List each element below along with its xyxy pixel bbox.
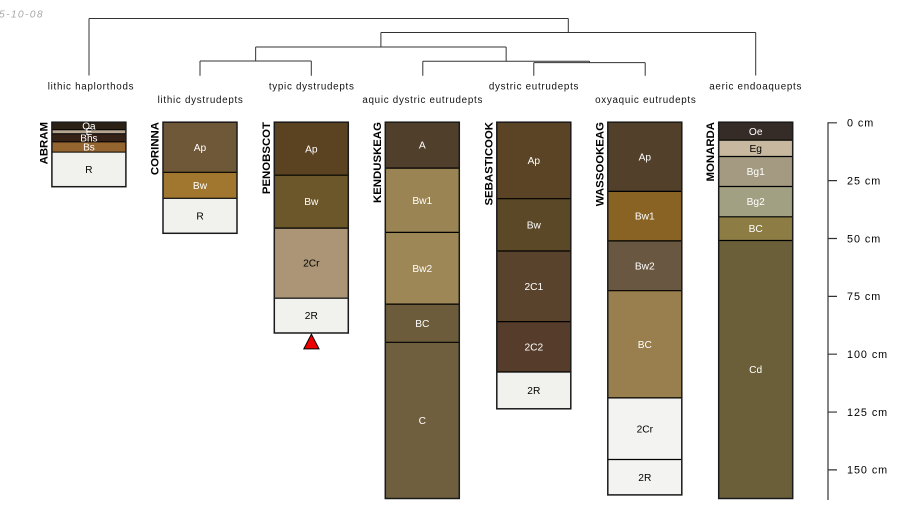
svg-text:A: A bbox=[419, 141, 426, 152]
svg-text:KENDUSKEAG: KENDUSKEAG bbox=[372, 122, 384, 203]
svg-text:2Cr: 2Cr bbox=[637, 424, 654, 435]
svg-text:50 cm: 50 cm bbox=[847, 233, 881, 245]
svg-text:Bw2: Bw2 bbox=[412, 264, 432, 275]
svg-text:150 cm: 150 cm bbox=[847, 465, 888, 477]
svg-text:aeric endoaquepts: aeric endoaquepts bbox=[709, 81, 802, 92]
svg-text:dystric eutrudepts: dystric eutrudepts bbox=[489, 81, 579, 92]
svg-text:Bg2: Bg2 bbox=[747, 197, 765, 208]
svg-text:25 cm: 25 cm bbox=[847, 175, 881, 187]
svg-text:Eg: Eg bbox=[749, 144, 762, 155]
svg-text:0 cm: 0 cm bbox=[847, 118, 874, 130]
svg-text:R: R bbox=[196, 211, 203, 222]
svg-text:75 cm: 75 cm bbox=[847, 291, 881, 303]
svg-text:typic dystrudepts: typic dystrudepts bbox=[269, 81, 355, 92]
svg-text:2R: 2R bbox=[527, 386, 540, 397]
svg-text:ABRAM: ABRAM bbox=[38, 122, 50, 164]
svg-text:Bs: Bs bbox=[83, 143, 95, 154]
svg-text:5-10-08: 5-10-08 bbox=[0, 10, 44, 21]
svg-text:R: R bbox=[85, 165, 92, 176]
svg-text:2C2: 2C2 bbox=[524, 342, 543, 353]
svg-text:Bw1: Bw1 bbox=[412, 196, 432, 207]
svg-text:Bw2: Bw2 bbox=[635, 261, 655, 272]
svg-text:Ap: Ap bbox=[194, 143, 207, 154]
svg-text:WASSOOKEAG: WASSOOKEAG bbox=[594, 122, 606, 206]
svg-text:2R: 2R bbox=[638, 473, 651, 484]
svg-text:2C1: 2C1 bbox=[524, 282, 543, 293]
svg-text:Ap: Ap bbox=[305, 144, 318, 155]
svg-text:125 cm: 125 cm bbox=[847, 407, 888, 419]
svg-text:BC: BC bbox=[749, 224, 763, 235]
svg-text:lithic dystrudepts: lithic dystrudepts bbox=[158, 95, 244, 106]
svg-text:2Cr: 2Cr bbox=[303, 259, 320, 270]
svg-text:C: C bbox=[419, 416, 426, 427]
svg-text:Bg1: Bg1 bbox=[747, 167, 765, 178]
svg-text:Bw: Bw bbox=[527, 220, 542, 231]
svg-text:BC: BC bbox=[415, 319, 429, 330]
svg-text:lithic haplorthods: lithic haplorthods bbox=[48, 81, 134, 92]
svg-text:Ap: Ap bbox=[528, 156, 541, 167]
svg-text:BC: BC bbox=[638, 340, 652, 351]
svg-text:PENOBSCOT: PENOBSCOT bbox=[261, 122, 273, 194]
svg-text:2R: 2R bbox=[305, 311, 318, 322]
svg-text:oxyaquic eutrudepts: oxyaquic eutrudepts bbox=[595, 95, 696, 106]
svg-text:Cd: Cd bbox=[749, 365, 762, 376]
svg-text:CORINNA: CORINNA bbox=[150, 122, 162, 175]
svg-text:Bw: Bw bbox=[304, 197, 319, 208]
svg-text:SEBASTICOOK: SEBASTICOOK bbox=[483, 121, 495, 205]
svg-text:Ap: Ap bbox=[639, 152, 652, 163]
svg-text:Oe: Oe bbox=[749, 127, 763, 138]
svg-text:100 cm: 100 cm bbox=[847, 349, 888, 361]
svg-text:MONARDA: MONARDA bbox=[705, 122, 717, 181]
svg-text:aquic dystric eutrudepts: aquic dystric eutrudepts bbox=[362, 95, 483, 106]
svg-text:Bw1: Bw1 bbox=[635, 212, 655, 223]
svg-text:Bw: Bw bbox=[193, 181, 208, 192]
